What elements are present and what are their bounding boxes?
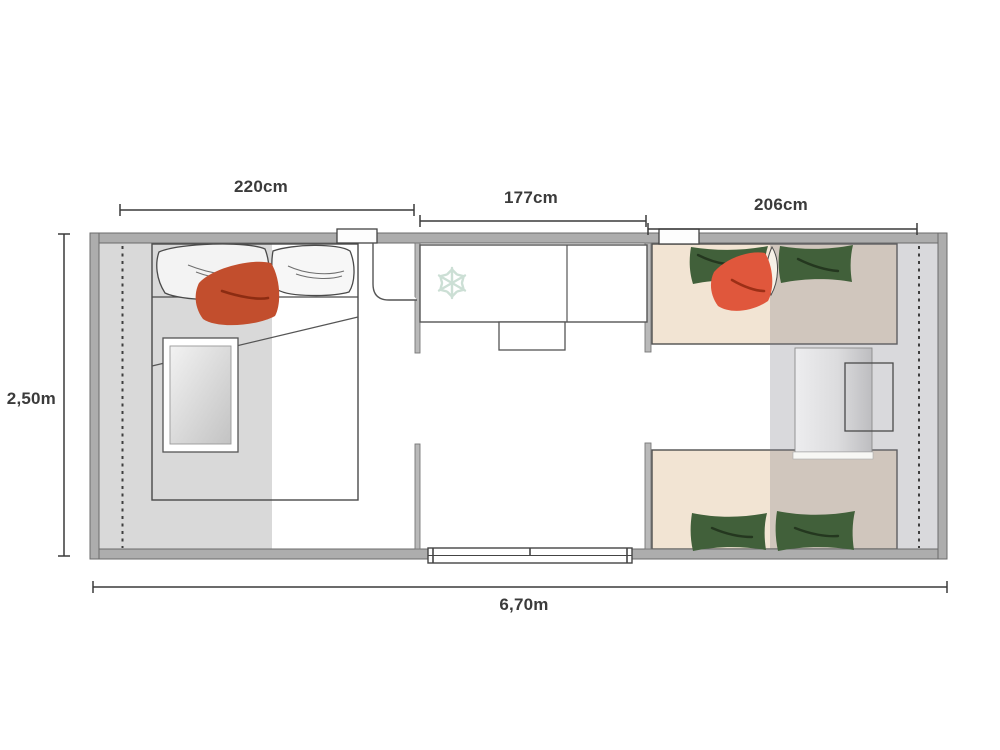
label-left-room-width: 220cm xyxy=(211,177,311,197)
label-right-room-width: 206cm xyxy=(731,195,831,215)
label-middle-room-width: 177cm xyxy=(481,188,581,208)
partition-left-lower xyxy=(415,444,420,549)
partition-right-lower xyxy=(645,443,651,549)
wall-left xyxy=(90,233,99,559)
window-right xyxy=(659,229,699,244)
floor-plan-page: 220cm 177cm 206cm 2,50m 6,70m xyxy=(0,0,1000,750)
entrance-door xyxy=(428,548,632,563)
wall-top xyxy=(90,233,947,243)
green-pillow-4 xyxy=(776,511,855,551)
bed-panel-inner xyxy=(170,346,231,444)
partition-left-upper xyxy=(415,243,420,353)
wall-right xyxy=(938,233,947,559)
label-plan-depth: 2,50m xyxy=(2,389,56,409)
green-pillow-3 xyxy=(691,513,767,551)
cabinet-base xyxy=(793,452,873,459)
green-pillow-2 xyxy=(779,245,853,283)
window-left xyxy=(337,229,377,243)
floor-plan-drawing xyxy=(0,0,1000,750)
counter-drawer xyxy=(499,322,565,350)
label-plan-total-width: 6,70m xyxy=(474,595,574,615)
white-pillow-2 xyxy=(272,245,354,295)
